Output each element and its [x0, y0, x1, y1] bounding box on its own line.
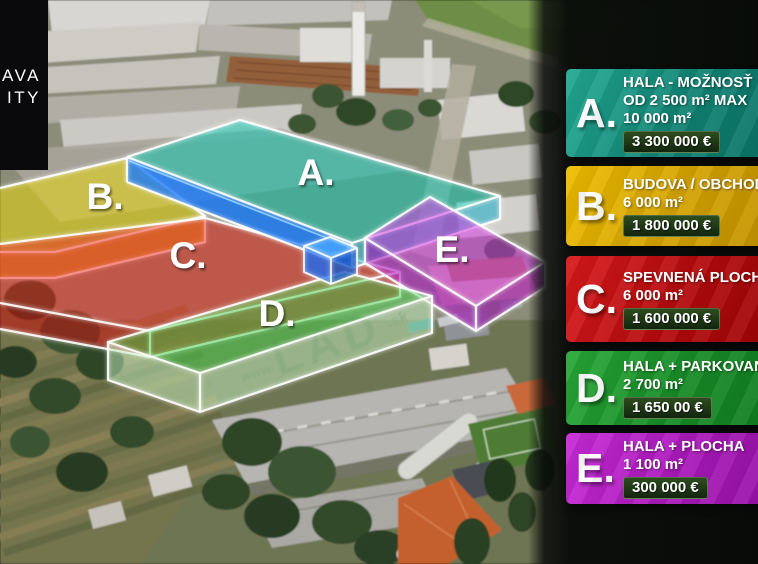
- card-a-letter: A.: [576, 93, 623, 134]
- card-a-price-badge: 3 300 000 €: [623, 131, 720, 153]
- legend-card-c: C. SPEVNENÁ PLOCHA 6 000 m² 1 600 000 €: [566, 256, 758, 342]
- card-d-letter: D.: [576, 368, 623, 409]
- card-c-title: SPEVNENÁ PLOCHA: [623, 269, 758, 287]
- legend-card-e: E. HALA + PLOCHA 1 100 m² 300 000 €: [566, 433, 758, 504]
- card-d-area: 2 700 m²: [623, 376, 758, 394]
- card-e-title: HALA + PLOCHA: [623, 438, 745, 456]
- zone-e-label: E.: [435, 229, 470, 270]
- card-e-letter: E.: [576, 448, 623, 489]
- real-estate-offer-poster: www. LAD .sk: [0, 0, 758, 564]
- card-c-price-badge: 1 600 000 €: [623, 308, 720, 330]
- zone-d-label: D.: [259, 293, 296, 334]
- brand-logo-box: AVA ITY: [0, 0, 48, 170]
- zone-b-label: B.: [87, 176, 124, 217]
- card-b-title: BUDOVA / OBCHOD: [623, 176, 758, 194]
- card-d-price-badge: 1 650 00 €: [623, 397, 712, 419]
- zone-a-label: A.: [298, 152, 335, 193]
- logo-text-line2: ITY: [7, 88, 41, 108]
- card-e-area: 1 100 m²: [623, 456, 745, 474]
- card-a-area: 10 000 m²: [623, 110, 752, 128]
- card-b-letter: B.: [576, 186, 623, 227]
- card-a-title-1: HALA - MOŽNOSŤ: [623, 74, 752, 92]
- card-c-area: 6 000 m²: [623, 287, 758, 305]
- card-d-title: HALA + PARKOVANIE: [623, 358, 758, 376]
- legend-card-a: A. HALA - MOŽNOSŤ OD 2 500 m² MAX 10 000…: [566, 69, 758, 157]
- zone-c-label: C.: [170, 235, 207, 276]
- card-b-area: 6 000 m²: [623, 194, 758, 212]
- logo-text-line1: AVA: [2, 66, 41, 86]
- card-a-title-2: OD 2 500 m² MAX: [623, 92, 752, 110]
- card-c-letter: C.: [576, 279, 623, 320]
- card-b-price-badge: 1 800 000 €: [623, 215, 720, 237]
- legend-card-b: B. BUDOVA / OBCHOD 6 000 m² 1 800 000 €: [566, 166, 758, 246]
- legend-card-d: D. HALA + PARKOVANIE 2 700 m² 1 650 00 €: [566, 351, 758, 425]
- card-e-price-badge: 300 000 €: [623, 477, 708, 499]
